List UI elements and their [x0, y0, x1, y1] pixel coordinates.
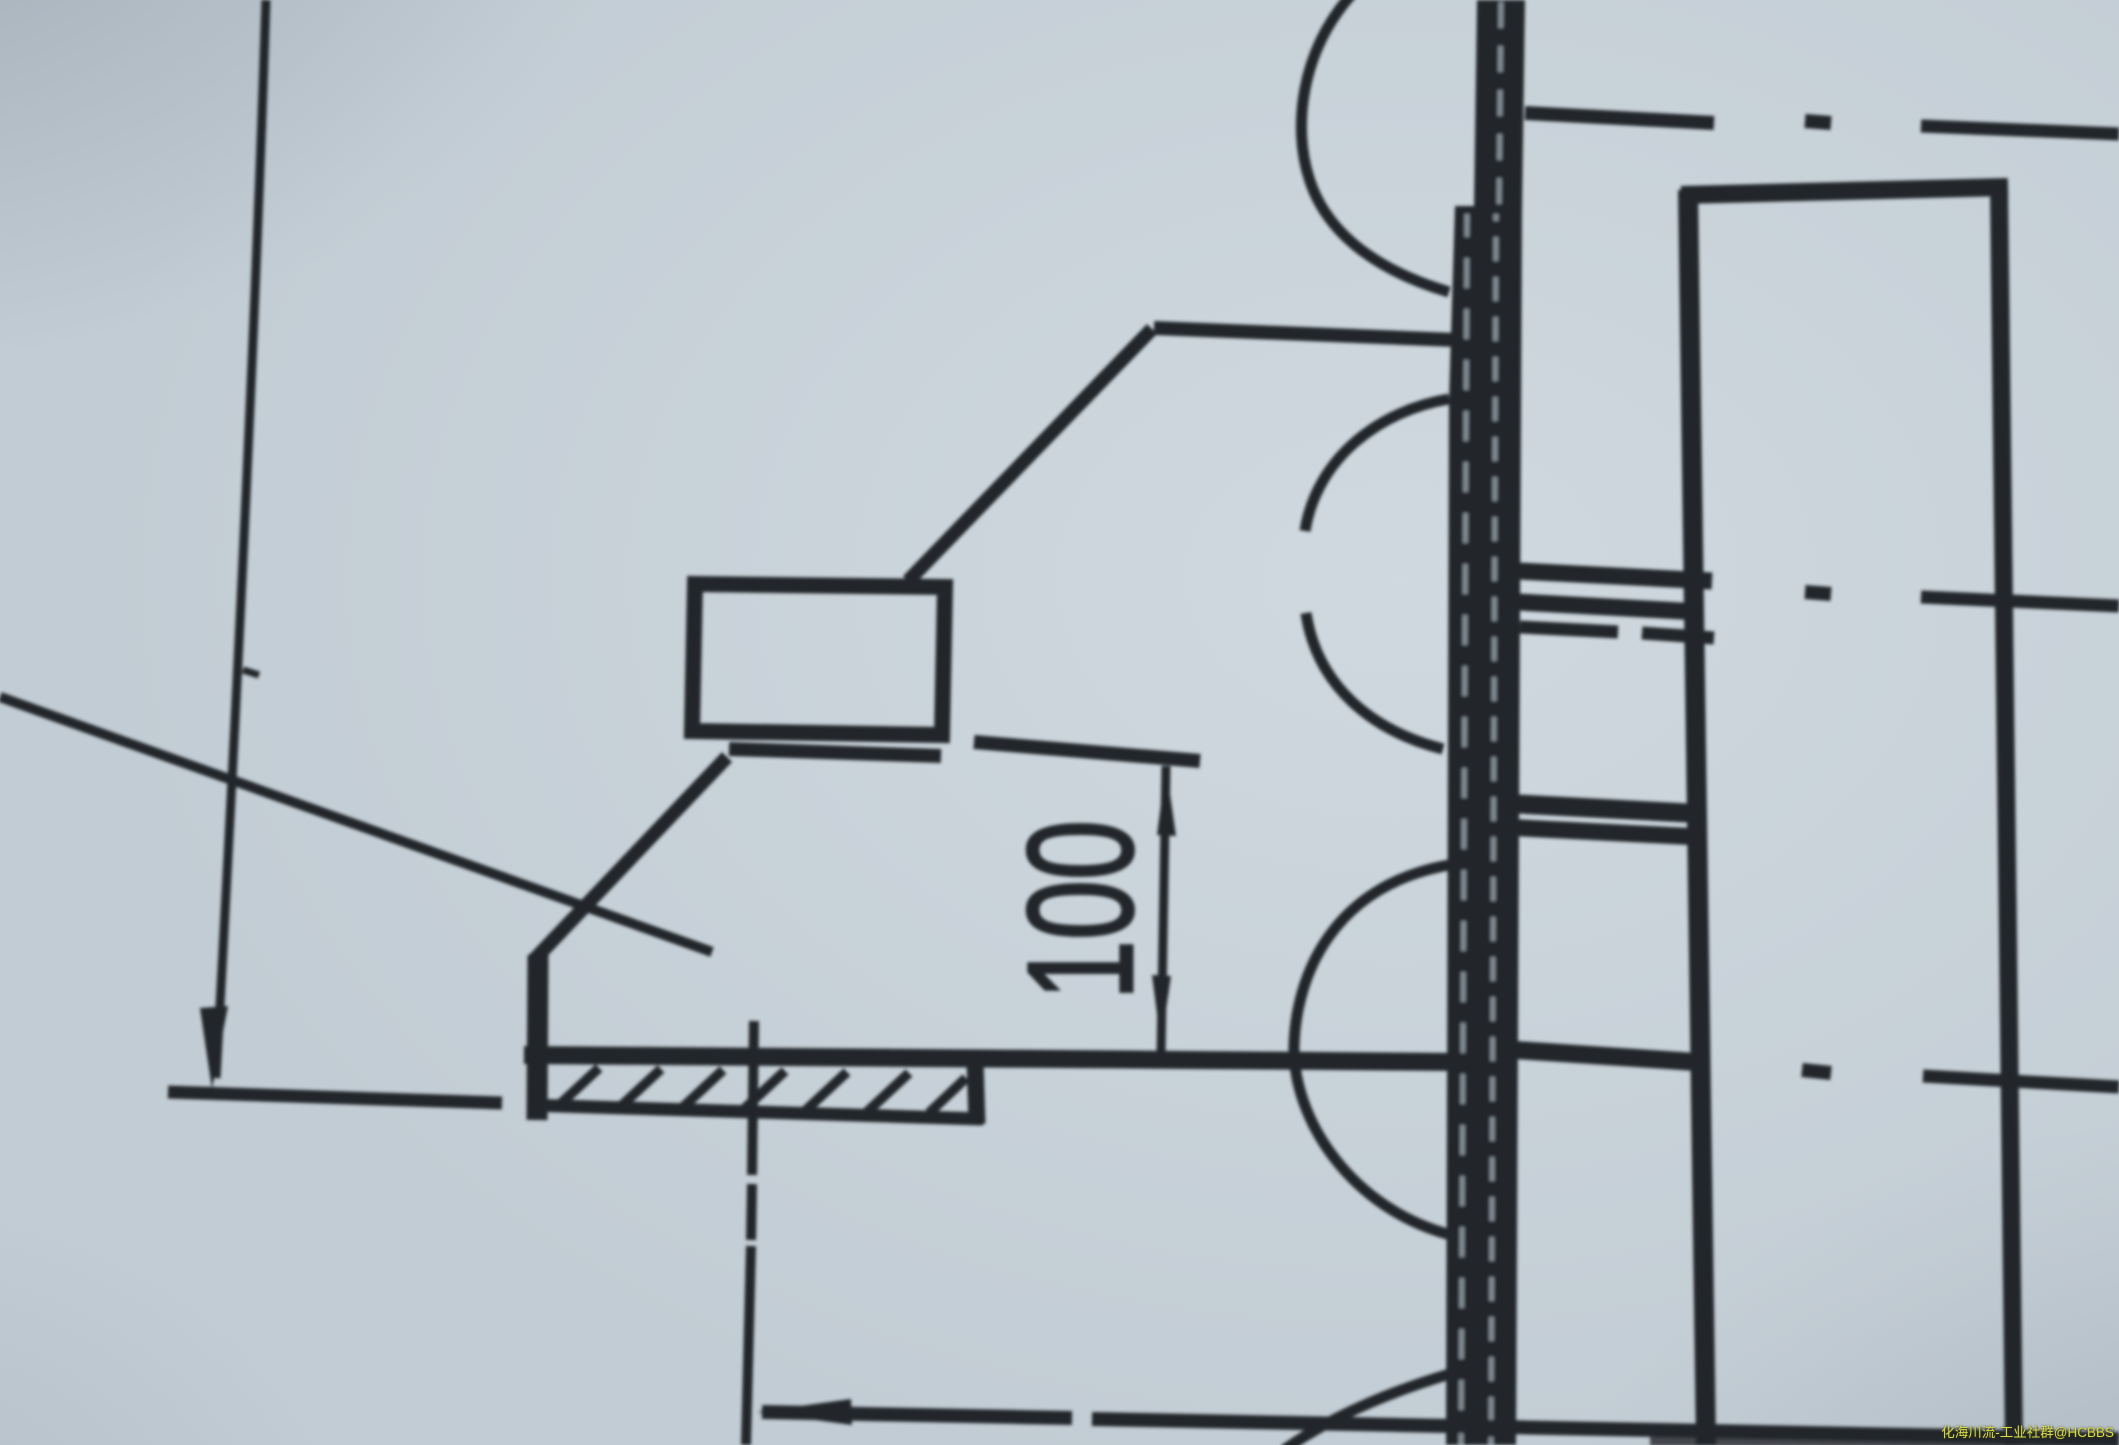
svg-text:100: 100	[996, 820, 1164, 1000]
